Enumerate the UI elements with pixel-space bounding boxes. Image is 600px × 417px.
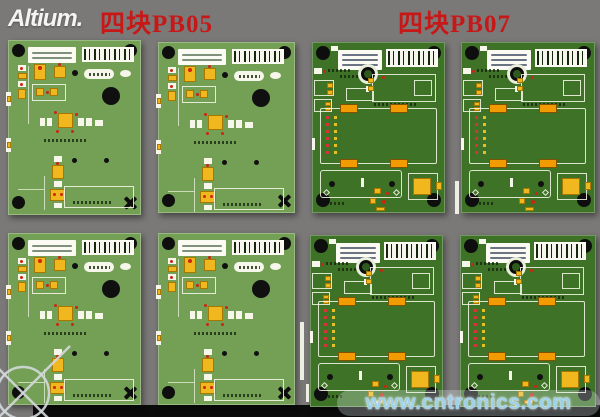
pad (366, 271, 372, 276)
component (462, 261, 470, 267)
pad (196, 284, 199, 287)
component (86, 311, 92, 319)
silkscreen-text (223, 203, 263, 206)
pad (475, 283, 481, 288)
pad (50, 281, 58, 289)
component (236, 311, 242, 319)
component (245, 313, 253, 319)
pad (186, 90, 194, 98)
pad (208, 65, 211, 68)
pad (476, 90, 482, 95)
pad (170, 260, 173, 263)
pad (71, 323, 74, 326)
pad (200, 281, 208, 289)
pad (386, 192, 389, 195)
pad (517, 86, 523, 91)
via-hole (104, 351, 109, 356)
edge-mark (460, 331, 463, 343)
pad (517, 78, 523, 83)
component (202, 167, 214, 181)
silkscreen-box (64, 186, 134, 208)
pad (60, 193, 63, 196)
pad (340, 159, 358, 168)
pb05-board-2[interactable] (158, 42, 295, 213)
pin-row (482, 309, 485, 349)
silkscreen-box (314, 80, 334, 96)
pad (20, 83, 23, 86)
component (314, 68, 322, 74)
component (370, 198, 376, 204)
pad (170, 69, 173, 72)
via-hole (72, 263, 78, 269)
component (18, 89, 26, 99)
silkscreen-box (463, 80, 483, 96)
component (168, 282, 176, 292)
pad (53, 193, 56, 196)
pad (382, 76, 385, 79)
silkscreen-text (479, 202, 495, 205)
label-text (239, 266, 260, 269)
pad (390, 104, 408, 113)
component (47, 118, 52, 126)
label-text (89, 73, 110, 76)
pin-row (474, 309, 477, 349)
via-hole (72, 158, 77, 163)
pb05-board-1[interactable] (8, 40, 141, 215)
pad (7, 142, 11, 148)
pad (225, 306, 228, 309)
via-hole (222, 72, 228, 78)
silkscreen-line (168, 382, 194, 383)
pad (56, 162, 59, 165)
pb07-board-2[interactable] (461, 42, 595, 213)
component (361, 178, 364, 187)
pad (46, 284, 49, 287)
mounting-hole (252, 280, 270, 298)
pad (534, 385, 537, 388)
pad (390, 159, 408, 168)
via-hole (329, 181, 335, 187)
pad (206, 132, 209, 135)
pad (473, 295, 479, 299)
panel-rail (306, 384, 309, 402)
pad (208, 256, 211, 259)
component (197, 120, 202, 128)
silkscreen-line (168, 191, 194, 192)
component (18, 282, 26, 292)
pad (584, 375, 590, 383)
barcode (535, 49, 587, 67)
silkscreen-text (44, 139, 86, 142)
barcode (534, 242, 586, 260)
pad (196, 93, 199, 96)
component (359, 371, 362, 380)
pad (472, 70, 475, 73)
pad (38, 259, 42, 263)
component (509, 371, 512, 380)
component (120, 263, 131, 270)
pad (170, 276, 173, 279)
pb07-board-1[interactable] (312, 42, 445, 213)
panel-rail (455, 181, 459, 214)
pad (474, 102, 480, 106)
tooling-hole (12, 44, 25, 57)
silkscreen-mark (541, 382, 548, 389)
pad (75, 113, 78, 116)
pad (170, 85, 173, 88)
site-watermark: www.cntronics.com (337, 390, 600, 416)
component (168, 91, 176, 101)
pad (157, 98, 161, 104)
pad (340, 104, 358, 113)
component (40, 311, 45, 319)
pad (323, 295, 329, 299)
component (374, 188, 381, 194)
altium-canvas[interactable]: Altium. 四块PB05 四块PB07 (0, 0, 600, 417)
pad (325, 283, 331, 288)
tooling-hole (12, 237, 25, 250)
component (120, 70, 131, 77)
pad (562, 178, 580, 195)
pad (54, 304, 57, 307)
module-outline (320, 108, 437, 164)
pad (20, 276, 23, 279)
pad (325, 102, 331, 106)
silkscreen-line (194, 178, 195, 212)
silkscreen-box (557, 173, 587, 200)
tooling-hole (465, 46, 479, 60)
fiducial (479, 239, 486, 244)
pad (471, 263, 474, 266)
pad (200, 90, 208, 98)
silkscreen-text (476, 262, 498, 265)
pad (368, 78, 374, 83)
mounting-hole (102, 280, 120, 298)
pad (221, 323, 224, 326)
label-text (89, 266, 110, 269)
pin-row (334, 116, 337, 156)
pad (206, 323, 209, 326)
pad (323, 70, 326, 73)
pad (366, 279, 372, 284)
pad (157, 144, 161, 150)
component (519, 198, 525, 204)
board-label (28, 47, 76, 63)
component (95, 120, 103, 126)
component (204, 68, 216, 80)
pad (413, 178, 431, 195)
component (54, 181, 62, 187)
component (463, 68, 471, 74)
component (197, 311, 202, 319)
tooling-hole (464, 239, 478, 253)
edge-mark (312, 138, 315, 150)
barcode (232, 240, 284, 255)
component (168, 75, 177, 81)
via-hole (477, 374, 483, 380)
pad (7, 289, 11, 295)
component (190, 120, 195, 128)
silkscreen-mark (471, 382, 478, 389)
board-label (28, 240, 76, 256)
pb05-board-4[interactable] (158, 233, 295, 405)
component (228, 311, 234, 319)
component (204, 259, 216, 271)
silkscreen-box (214, 379, 284, 401)
pad (36, 88, 44, 96)
pad (188, 259, 192, 263)
via-hole (537, 374, 543, 380)
component (47, 311, 52, 319)
via-hole (327, 374, 333, 380)
via-hole (387, 374, 393, 380)
via-hole (478, 181, 484, 187)
panel-caption-pb05[interactable]: 四块PB05 (100, 4, 213, 40)
tooling-hole (162, 237, 175, 250)
silkscreen-mark (393, 189, 400, 196)
via-hole (72, 70, 78, 76)
silkscreen-mark (472, 189, 479, 196)
pad (20, 260, 23, 263)
silkscreen-text (328, 69, 350, 72)
component (86, 118, 92, 126)
ic-component (58, 113, 73, 128)
silkscreen-line (44, 176, 45, 210)
board-label (178, 240, 226, 256)
component (168, 266, 177, 272)
silkscreen-mark (391, 382, 398, 389)
pad (388, 297, 406, 306)
pad (203, 195, 206, 198)
component (18, 73, 27, 79)
pad (186, 281, 194, 289)
component (270, 263, 281, 270)
silkscreen-text (194, 141, 236, 144)
pad (516, 271, 522, 276)
board-label (178, 49, 226, 65)
pad (531, 76, 534, 79)
pad (71, 130, 74, 133)
component (523, 188, 530, 194)
silkscreen-line (194, 369, 195, 403)
component (510, 178, 513, 187)
silkscreen-box (562, 273, 580, 289)
pad (539, 104, 557, 113)
pad (561, 371, 579, 388)
pad (54, 111, 57, 114)
pad (58, 63, 61, 66)
pin-row (475, 116, 478, 156)
component (78, 118, 84, 126)
component (376, 207, 385, 211)
silkscreen-text (223, 394, 263, 397)
component (18, 266, 27, 272)
barcode (232, 49, 284, 64)
module-outline (468, 301, 585, 357)
mounting-hole (102, 87, 120, 105)
silkscreen-line (178, 68, 179, 126)
via-hole (389, 181, 395, 187)
tooling-hole (162, 194, 175, 207)
via-hole (222, 160, 227, 165)
silkscreen-box (462, 273, 482, 289)
silkscreen-text (194, 332, 236, 335)
pad (489, 104, 507, 113)
pin-row (326, 116, 329, 156)
pad (434, 375, 440, 383)
fiducial (329, 239, 336, 244)
pad (585, 182, 591, 190)
via-hole (222, 263, 228, 269)
component (204, 374, 212, 380)
tooling-hole (12, 196, 25, 209)
pad (157, 335, 161, 341)
edge-mark (461, 138, 464, 150)
barcode (82, 47, 134, 62)
via-hole (222, 351, 227, 356)
pb07-board-3[interactable] (310, 235, 443, 407)
ic-component (208, 306, 223, 321)
silkscreen-mark (321, 382, 328, 389)
component (372, 381, 379, 387)
silkscreen-box (408, 173, 438, 200)
label-text (239, 75, 260, 78)
pb07-board-4[interactable] (460, 235, 596, 407)
silkscreen-box (406, 366, 436, 393)
silkscreen-box (414, 80, 432, 96)
silkscreen-box (32, 84, 66, 101)
pad (204, 304, 207, 307)
pad (538, 352, 556, 361)
pad (338, 352, 356, 361)
pad (188, 68, 192, 72)
pad (535, 192, 538, 195)
component (204, 183, 212, 189)
silkscreen-line (28, 259, 29, 317)
component (522, 381, 529, 387)
component (228, 120, 234, 128)
pad (46, 91, 49, 94)
pad (384, 385, 387, 388)
crosshair-cursor-icon (0, 336, 80, 417)
fiducial (331, 46, 338, 51)
edge-mark (310, 331, 313, 343)
component (95, 313, 103, 319)
component (202, 358, 214, 372)
pad (539, 159, 557, 168)
silkscreen-box (182, 86, 216, 103)
silkscreen-mark (323, 189, 330, 196)
tooling-hole (162, 386, 175, 399)
silkscreen-line (28, 66, 29, 124)
panel-caption-pb07[interactable]: 四块PB07 (398, 4, 511, 40)
component (40, 118, 45, 126)
component (190, 311, 195, 319)
pad (327, 90, 333, 95)
component (270, 72, 281, 79)
pin-row (483, 116, 486, 156)
pad (475, 276, 481, 281)
pad (488, 352, 506, 361)
component (78, 311, 84, 319)
silkscreen-text (44, 332, 86, 335)
pad (210, 386, 213, 389)
silkscreen-text (330, 202, 346, 205)
pad (56, 323, 59, 326)
pad (75, 306, 78, 309)
via-hole (254, 351, 259, 356)
pad (56, 130, 59, 133)
pad (382, 200, 386, 204)
silkscreen-text (73, 201, 113, 204)
component (204, 396, 212, 401)
pad (50, 88, 58, 96)
pad (436, 182, 442, 190)
pad (380, 269, 383, 272)
silkscreen-box (412, 273, 430, 289)
component (204, 205, 212, 210)
via-hole (104, 158, 109, 163)
battery-holder-outline (468, 363, 550, 391)
component (525, 207, 534, 211)
battery-holder-outline (469, 170, 551, 198)
silkscreen-line (18, 189, 44, 190)
panel-rail (300, 322, 304, 380)
pad (338, 297, 356, 306)
via-hole (538, 181, 544, 187)
pad (489, 159, 507, 168)
component (54, 66, 66, 78)
silkscreen-text (477, 69, 499, 72)
pad (38, 66, 42, 70)
pad (488, 297, 506, 306)
component (236, 120, 242, 128)
tooling-hole (316, 46, 330, 60)
mounting-hole (252, 89, 270, 107)
pad (325, 276, 331, 281)
pad (7, 96, 11, 102)
tooling-hole (314, 239, 328, 253)
pad (206, 355, 209, 358)
barcode (386, 49, 438, 67)
pad (204, 113, 207, 116)
pad (321, 263, 324, 266)
pad (157, 289, 161, 295)
component (312, 261, 320, 267)
pad (388, 352, 406, 361)
silkscreen-box (563, 80, 581, 96)
pad (516, 279, 522, 284)
pad (530, 269, 533, 272)
pad (221, 132, 224, 135)
silkscreen-box (32, 277, 66, 294)
pad (327, 83, 333, 88)
pad (411, 371, 429, 388)
pad (368, 86, 374, 91)
barcode (82, 240, 134, 255)
pad (20, 67, 23, 70)
via-hole (254, 160, 259, 165)
pad (225, 115, 228, 118)
ic-component (208, 115, 223, 130)
pad (206, 164, 209, 167)
component (54, 203, 62, 208)
fiducial (480, 46, 487, 51)
pad (210, 195, 213, 198)
silkscreen-line (178, 259, 179, 317)
silkscreen-text (326, 262, 348, 265)
ic-component (58, 306, 73, 321)
